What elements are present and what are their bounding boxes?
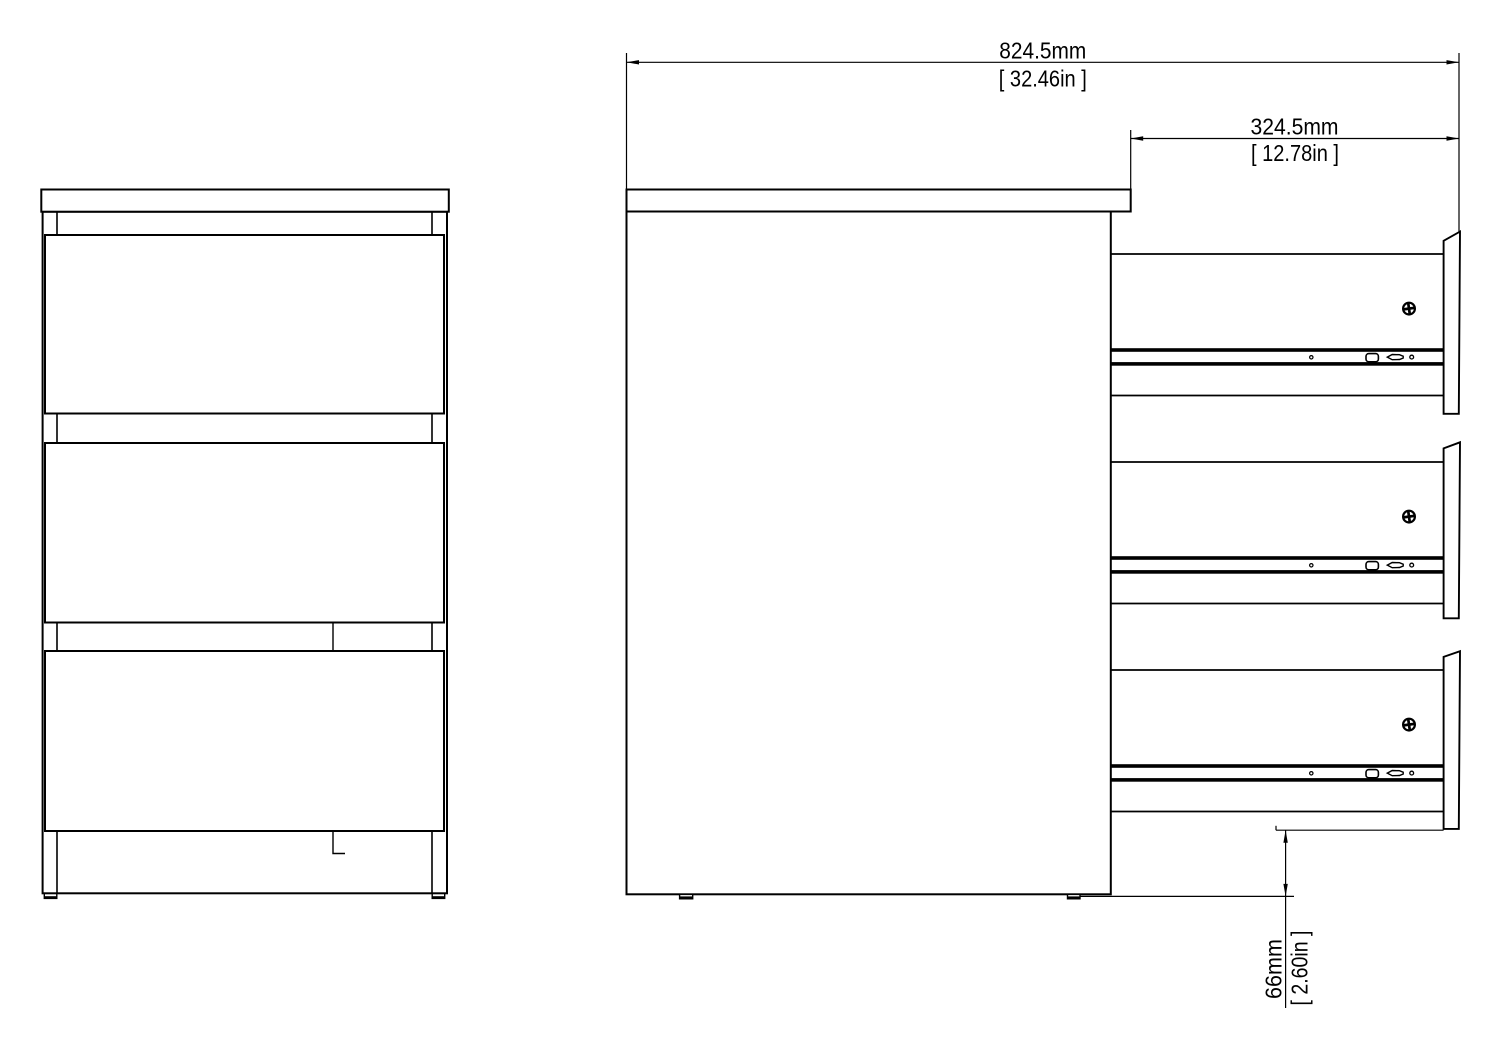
svg-text:[ 2.60in ]: [ 2.60in ] <box>1287 931 1313 1006</box>
svg-text:[ 12.78in ]: [ 12.78in ] <box>1251 140 1339 166</box>
svg-text:824.5mm: 824.5mm <box>999 38 1086 64</box>
svg-text:[ 32.46in ]: [ 32.46in ] <box>999 65 1087 91</box>
svg-text:66mm: 66mm <box>1261 939 1287 999</box>
svg-text:324.5mm: 324.5mm <box>1251 113 1339 139</box>
